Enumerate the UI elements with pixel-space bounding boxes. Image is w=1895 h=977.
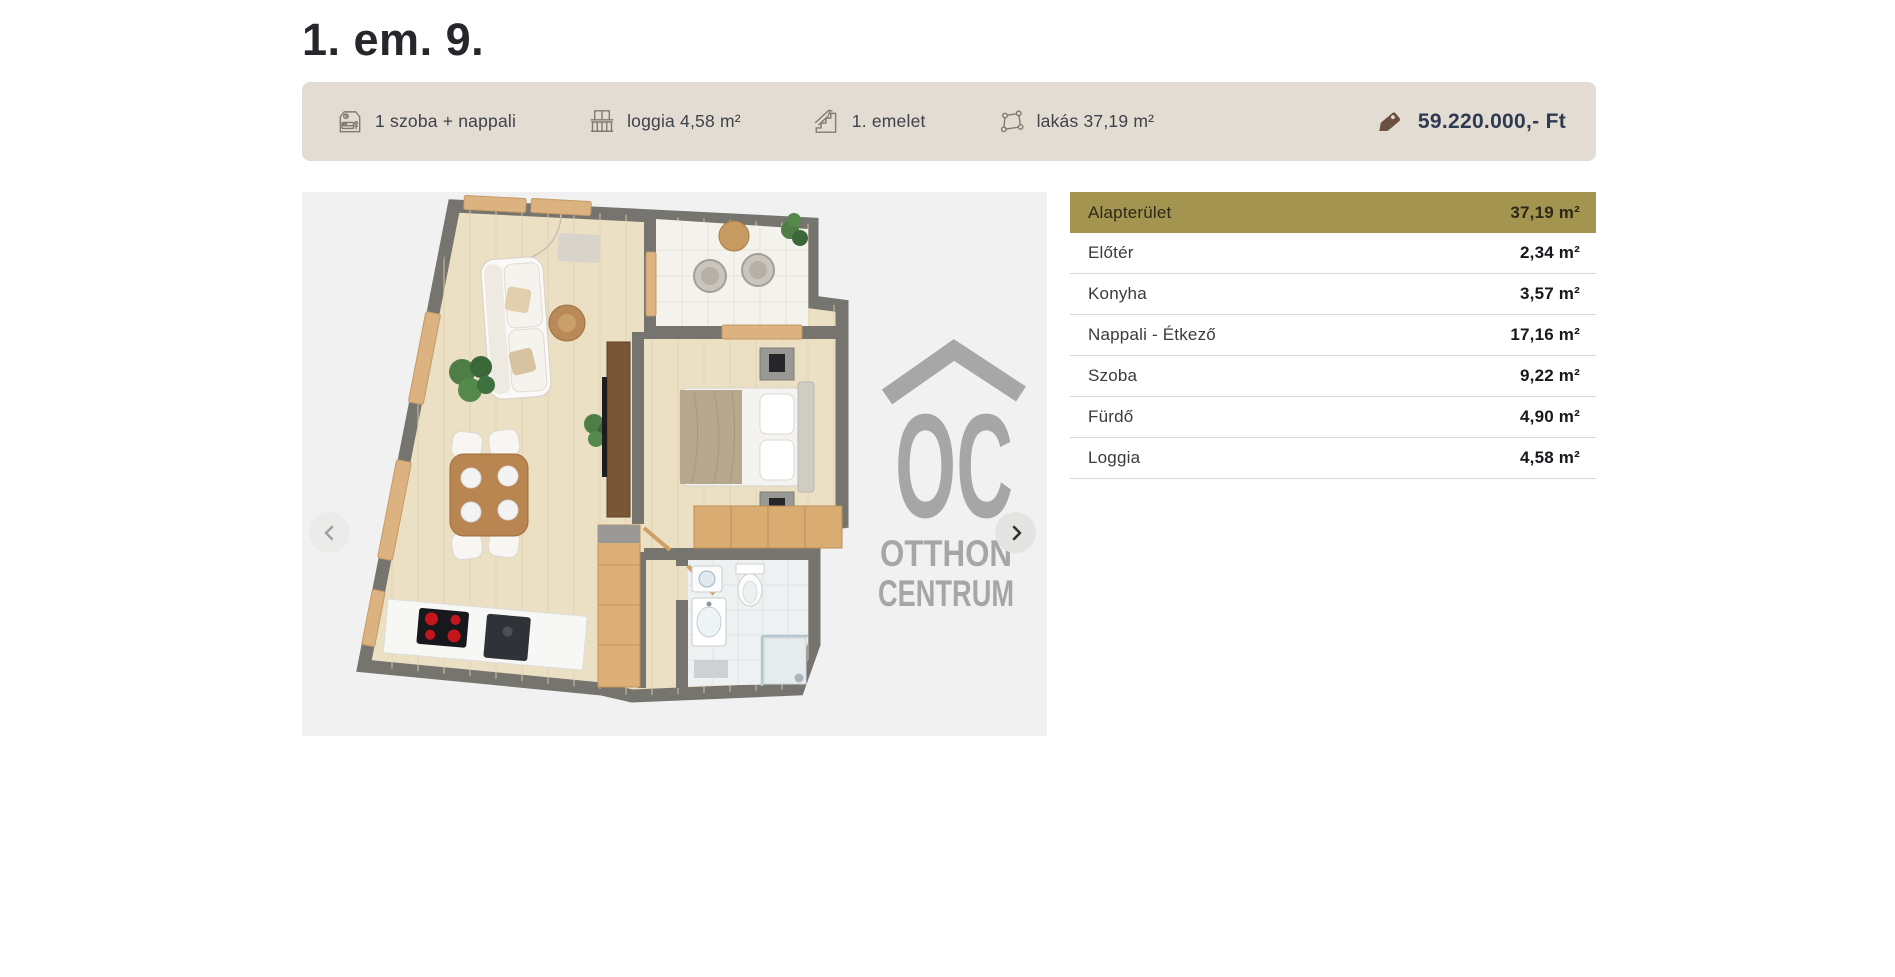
room-label: Fürdő xyxy=(1088,407,1133,427)
table-row: Fürdő 4,90 m² xyxy=(1070,397,1596,438)
room-area-value: 2,34 m² xyxy=(1520,243,1580,263)
table-row: Szoba 9,22 m² xyxy=(1070,356,1596,397)
table-row: Konyha 3,57 m² xyxy=(1070,274,1596,315)
area-table: Alapterület 37,19 m² Előtér 2,34 m² Kony… xyxy=(1070,192,1596,479)
summary-item-area: lakás 37,19 m² xyxy=(998,108,1155,136)
floor-area-icon xyxy=(998,108,1026,136)
summary-item-label: lakás 37,19 m² xyxy=(1037,111,1155,132)
room-label: Szoba xyxy=(1088,366,1137,386)
room-label: Loggia xyxy=(1088,448,1140,468)
room-area-value: 9,22 m² xyxy=(1520,366,1580,386)
price-tag-icon xyxy=(1375,107,1405,137)
room-area-value: 4,58 m² xyxy=(1520,448,1580,468)
main-section: OC OTTHON CENTRUM xyxy=(302,192,1596,736)
price-value: 59.220.000,- Ft xyxy=(1418,110,1566,134)
room-label: Előtér xyxy=(1088,243,1134,263)
room-label: Konyha xyxy=(1088,284,1147,304)
chevron-right-icon xyxy=(1006,523,1026,543)
coffee-table xyxy=(549,305,585,341)
nightstand xyxy=(760,348,794,380)
summary-bar: 1 szoba + nappali loggia 4,58 m² 1. emel… xyxy=(302,82,1596,161)
carousel-next-button[interactable] xyxy=(995,512,1036,553)
room-label: Alapterület xyxy=(1088,203,1171,223)
floorplan-carousel: OC OTTHON CENTRUM xyxy=(302,192,1047,736)
table-row: Alapterület 37,19 m² xyxy=(1070,192,1596,233)
summary-item-loggia: loggia 4,58 m² xyxy=(588,108,741,136)
room-area-value: 4,90 m² xyxy=(1520,407,1580,427)
room-label: Nappali - Étkező xyxy=(1088,325,1216,345)
room-area-value: 37,19 m² xyxy=(1510,203,1580,223)
watermark-line2: CENTRUM xyxy=(878,573,1014,614)
balcony-icon xyxy=(588,108,616,136)
room-area-value: 3,57 m² xyxy=(1520,284,1580,304)
price: 59.220.000,- Ft xyxy=(1375,107,1566,137)
summary-item-rooms: 1 szoba + nappali xyxy=(336,108,516,136)
table-row: Loggia 4,58 m² xyxy=(1070,438,1596,479)
watermark: OC OTTHON CENTRUM xyxy=(878,350,1021,614)
room-area-value: 17,16 m² xyxy=(1510,325,1580,345)
content-column: 1. em. 9. 1 szoba + nappali xyxy=(302,0,1596,736)
kitchen-cabinets xyxy=(598,525,640,687)
floorplan-image: OC OTTHON CENTRUM xyxy=(302,192,1047,736)
apartment-detail-page: 1. em. 9. 1 szoba + nappali xyxy=(0,0,1895,977)
summary-item-label: 1. emelet xyxy=(852,111,926,132)
table-row: Nappali - Étkező 17,16 m² xyxy=(1070,315,1596,356)
summary-item-floor: 1. emelet xyxy=(813,108,926,136)
carousel-prev-button[interactable] xyxy=(309,512,350,553)
watermark-line1: OTTHON xyxy=(880,533,1012,574)
page-title: 1. em. 9. xyxy=(302,14,1596,66)
summary-item-label: loggia 4,58 m² xyxy=(627,111,741,132)
stairs-icon xyxy=(813,108,841,136)
chevron-left-icon xyxy=(320,523,340,543)
wardrobe xyxy=(694,506,842,548)
summary-item-label: 1 szoba + nappali xyxy=(375,111,516,132)
table-row: Előtér 2,34 m² xyxy=(1070,233,1596,274)
watermark-logo: OC xyxy=(895,384,1013,549)
bedroom-icon xyxy=(336,108,364,136)
bed xyxy=(680,382,814,492)
